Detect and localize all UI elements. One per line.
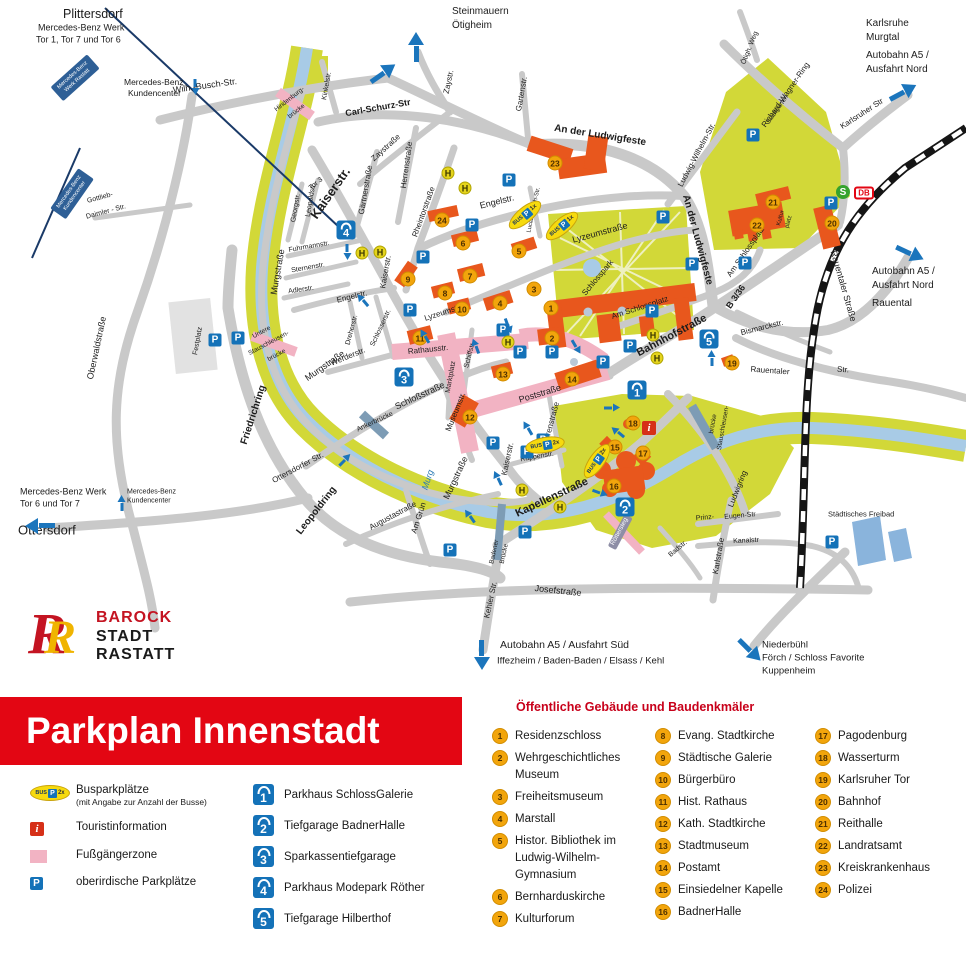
building-list-item: 11Hist. Rathaus [655, 794, 807, 811]
garage-list-item: 3Sparkassentiefgarage [253, 846, 468, 867]
building-label: Histor. Bibliothek im Ludwig-Wilhelm-Gym… [515, 833, 642, 884]
parking-garage-icon: 2 [253, 815, 274, 836]
garage-list-item: 4Parkhaus Modepark Röther [253, 877, 468, 898]
garage-list-item: 1Parkhaus SchlossGalerie [253, 784, 468, 805]
page-title: Parkplan Innenstadt [0, 710, 380, 752]
building-label: Kulturforum [515, 911, 574, 928]
tourist-info-icon: i [30, 822, 44, 836]
buildings-header: Öffentliche Gebäude und Baudenkmäler [516, 700, 962, 714]
building-label: Wasserturm [838, 750, 900, 767]
schlosspark-pond [583, 259, 601, 277]
building-list-item: 9Städtische Galerie [655, 750, 807, 767]
building-badge: 20 [815, 794, 831, 810]
building-badge: 24 [815, 882, 831, 898]
building-list-item: 1Residenzschloss [492, 728, 642, 745]
garage-label: Sparkassentiefgarage [284, 851, 396, 863]
building-list-item: 12Kath. Stadtkirche [655, 816, 807, 833]
logo-r-yellow: R [44, 610, 76, 665]
garage-label: Tiefgarage BadnerHalle [284, 820, 405, 832]
building-label: Pagodenburg [838, 728, 907, 745]
building-label: Wehrgeschichtliches Museum [515, 750, 642, 784]
badener-bruecke [497, 504, 502, 560]
parking-garage-legend: 1Parkhaus SchlossGalerie2Tiefgarage Badn… [253, 784, 468, 939]
building-badge: 23 [815, 860, 831, 876]
rastatt-logo: R R BAROCK STADT RASTATT [28, 606, 175, 668]
building-label: Städtische Galerie [678, 750, 772, 767]
logo-line-stadt: STADT [96, 628, 175, 647]
building-badge: 4 [492, 811, 508, 827]
building-badge: 19 [815, 772, 831, 788]
building-label: Bürgerbüro [678, 772, 736, 789]
building-list-item: 4Marstall [492, 811, 642, 828]
surface-parking-icon: P [30, 877, 43, 890]
rastatt-logo-glyph: R R [28, 606, 86, 668]
legend-symbols: BUSP2x Busparkplätze (mit Angabe zur Anz… [30, 784, 245, 903]
legend-zone-label: Fußgängerzone [76, 849, 157, 861]
building-badge: 14 [655, 860, 671, 876]
building-list-item: 17Pagodenburg [815, 728, 960, 745]
parkplan-page: PlittersdorfMercedes-Benz WerkTor 1, Tor… [0, 0, 966, 966]
building-badge: 1 [492, 728, 508, 744]
building-badge: 6 [492, 889, 508, 905]
building-list-item: 22Landratsamt [815, 838, 960, 855]
building-list-item: 5Histor. Bibliothek im Ludwig-Wilhelm-Gy… [492, 833, 642, 884]
building-badge: 8 [655, 728, 671, 744]
building-badge: 13 [655, 838, 671, 854]
building-badge: 15 [655, 882, 671, 898]
building-list-item: 14Postamt [655, 860, 807, 877]
public-buildings-legend: Öffentliche Gebäude und Baudenkmäler 1Re… [492, 700, 962, 724]
pedestrian-zone-icon [30, 850, 47, 863]
building-list-item: 7Kulturforum [492, 911, 642, 928]
building-list-item: 18Wasserturm [815, 750, 960, 767]
building-list-item: 23Kreiskrankenhaus [815, 860, 960, 877]
garage-label: Parkhaus SchlossGalerie [284, 789, 413, 801]
building-badge: 11 [655, 794, 671, 810]
building-list-item: 3Freiheitsmuseum [492, 789, 642, 806]
building-list-item: 16BadnerHalle [655, 904, 807, 921]
building-badge: 2 [492, 750, 508, 766]
building-label: Bernharduskirche [515, 889, 605, 906]
legend-row-fussgaengerzone: Fußgängerzone [30, 849, 245, 863]
building-label: BadnerHalle [678, 904, 741, 921]
legend-row-busparkplaetze: BUSP2x Busparkplätze (mit Angabe zur Anz… [30, 784, 245, 808]
building-badge: 10 [655, 772, 671, 788]
building-label: Kreiskrankenhaus [838, 860, 930, 877]
logo-line-rastatt: RASTATT [96, 646, 175, 665]
building-label: Landratsamt [838, 838, 902, 855]
garage-list-item: 5Tiefgarage Hilberthof [253, 908, 468, 929]
building-label: Stadtmuseum [678, 838, 749, 855]
buildings-column-1: 1Residenzschloss2Wehrgeschichtliches Mus… [492, 728, 642, 933]
building-badge: 5 [492, 833, 508, 849]
building-label: Bahnhof [838, 794, 881, 811]
building-label: Hist. Rathaus [678, 794, 747, 811]
building-label: Einsiedelner Kapelle [678, 882, 783, 899]
building-list-item: 6Bernharduskirche [492, 889, 642, 906]
legend-parking-label: oberirdische Parkplätze [76, 876, 196, 888]
legend-bus-sub: (mit Angabe zur Anzahl der Busse) [76, 797, 207, 807]
garage-list-item: 2Tiefgarage BadnerHalle [253, 815, 468, 836]
building-label: Kath. Stadtkirche [678, 816, 766, 833]
building-label: Postamt [678, 860, 720, 877]
buildings-column-2: 8Evang. Stadtkirche9Städtische Galerie10… [655, 728, 807, 926]
building-badge: 22 [815, 838, 831, 854]
building-label: Marstall [515, 811, 555, 828]
building-label: Karlsruher Tor [838, 772, 910, 789]
building-list-item: 24Polizei [815, 882, 960, 899]
legend-row-parkplaetze: P oberirdische Parkplätze [30, 876, 245, 890]
garage-label: Parkhaus Modepark Röther [284, 882, 425, 894]
legend-row-touristinfo: i Touristinformation [30, 821, 245, 836]
legend-bus-label: Busparkplätze [76, 784, 149, 796]
building-list-item: 19Karlsruher Tor [815, 772, 960, 789]
freibad-buildings [852, 516, 912, 566]
building-badge: 18 [815, 750, 831, 766]
building-label: Residenzschloss [515, 728, 601, 745]
building-label: Evang. Stadtkirche [678, 728, 775, 745]
city-map [0, 0, 966, 692]
building-badge: 16 [655, 904, 671, 920]
buildings-column-3: 17Pagodenburg18Wasserturm19Karlsruher To… [815, 728, 960, 904]
building-badge: 21 [815, 816, 831, 832]
building-list-item: 20Bahnhof [815, 794, 960, 811]
building-badge: 7 [492, 911, 508, 927]
building-badge: 9 [655, 750, 671, 766]
legend-tourist-label: Touristinformation [76, 821, 167, 833]
building-list-item: 13Stadtmuseum [655, 838, 807, 855]
building-label: Reithalle [838, 816, 883, 833]
building-list-item: 10Bürgerbüro [655, 772, 807, 789]
building-list-item: 8Evang. Stadtkirche [655, 728, 807, 745]
building-label: Freiheitsmuseum [515, 789, 603, 806]
building-list-item: 15Einsiedelner Kapelle [655, 882, 807, 899]
building-badge: 3 [492, 789, 508, 805]
building-badge: 17 [815, 728, 831, 744]
building-list-item: 21Reithalle [815, 816, 960, 833]
logo-text: BAROCK STADT RASTATT [96, 609, 175, 666]
building-list-item: 2Wehrgeschichtliches Museum [492, 750, 642, 784]
logo-line-barock: BAROCK [96, 609, 175, 628]
parking-garage-icon: 4 [253, 877, 274, 898]
title-banner: Parkplan Innenstadt [0, 697, 462, 765]
building-badge: 12 [655, 816, 671, 832]
festplatz-area [168, 298, 217, 374]
bus-parking-icon: BUSP2x [30, 785, 70, 801]
garage-label: Tiefgarage Hilberthof [284, 913, 391, 925]
building-label: Polizei [838, 882, 872, 899]
parking-garage-icon: 1 [253, 784, 274, 805]
parking-garage-icon: 3 [253, 846, 274, 867]
parking-garage-icon: 5 [253, 908, 274, 929]
